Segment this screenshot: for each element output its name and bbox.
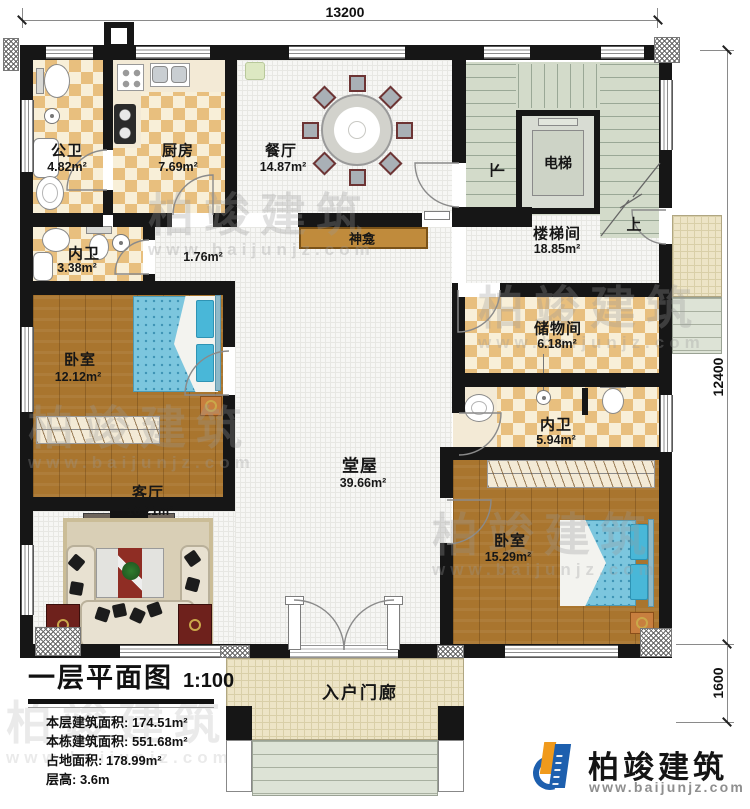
sofa-pillow bbox=[69, 581, 84, 596]
stair-down-label: 下 bbox=[487, 162, 508, 177]
wall bbox=[20, 213, 103, 227]
entry-steps bbox=[252, 740, 438, 796]
floor-plan-canvas: 柏竣建筑 www.baijunjz.com 柏竣建筑 www.baijunjz.… bbox=[0, 0, 750, 809]
sink-icon bbox=[42, 228, 70, 252]
legend-divider-thin bbox=[28, 707, 214, 708]
wall bbox=[213, 213, 237, 227]
dining-chair bbox=[302, 122, 319, 139]
stat-label: 本层建筑面积: bbox=[46, 715, 128, 730]
stat-label: 占地面积: bbox=[46, 753, 102, 768]
bath-partition bbox=[582, 388, 588, 415]
entry-door-leaf bbox=[387, 600, 400, 650]
toilet-icon bbox=[602, 388, 624, 414]
stair-treads-left bbox=[466, 64, 516, 213]
sofa-pillow bbox=[112, 603, 127, 618]
kitchen-stove bbox=[114, 104, 136, 144]
dining-chair bbox=[349, 169, 366, 186]
legend-divider bbox=[28, 699, 214, 704]
ceiling-lamp-icon bbox=[112, 234, 130, 252]
ceiling-lamp-icon bbox=[536, 390, 551, 405]
window bbox=[46, 46, 93, 59]
room-label-entry-porch: 入户门廊 bbox=[322, 679, 398, 704]
wall bbox=[452, 283, 458, 297]
window bbox=[660, 80, 673, 150]
headboard bbox=[648, 519, 654, 607]
stat-value: 551.68m² bbox=[132, 734, 188, 749]
wall bbox=[440, 543, 453, 644]
room-area-main-hall: 39.66m² bbox=[340, 476, 387, 490]
dining-table-center bbox=[348, 121, 366, 139]
room-area-kitchen: 7.69m² bbox=[158, 160, 198, 174]
bathtub bbox=[33, 252, 53, 281]
entry-door-cap bbox=[285, 596, 304, 605]
pillow bbox=[630, 564, 648, 600]
wardrobe bbox=[487, 460, 655, 488]
stat-label: 本栋建筑面积: bbox=[46, 734, 128, 749]
room-label-stair-hall: 楼梯间 bbox=[533, 223, 581, 244]
nightstand-lamp-icon bbox=[205, 400, 217, 412]
wall bbox=[440, 447, 672, 460]
window bbox=[484, 46, 530, 59]
sink-inner bbox=[471, 401, 487, 415]
dim-right-label: 12400 bbox=[710, 358, 726, 397]
floor-main-hall bbox=[235, 227, 452, 644]
wall bbox=[103, 60, 113, 150]
room-label-living-room: 客厅 bbox=[132, 482, 164, 503]
wall bbox=[452, 60, 466, 163]
entry-door-cap bbox=[384, 596, 403, 605]
room-label-elevator: 电梯 bbox=[544, 153, 572, 173]
chimney-flue bbox=[111, 28, 127, 44]
wall bbox=[143, 274, 155, 281]
stat-value: 174.51m² bbox=[132, 715, 188, 730]
brand-url: www.baijunjz.com bbox=[589, 779, 745, 795]
stair-treads-top bbox=[518, 64, 598, 108]
wall bbox=[113, 213, 172, 227]
door-threshold bbox=[290, 645, 398, 658]
corner-hatch bbox=[3, 38, 19, 71]
plan-title: 一层平面图 bbox=[28, 656, 173, 695]
porch-column-base bbox=[438, 740, 464, 792]
dim-line-right bbox=[727, 50, 728, 645]
room-label-dining: 餐厅 bbox=[265, 140, 297, 161]
stat-value: 178.99m² bbox=[106, 753, 162, 768]
room-area-storage: 6.18m² bbox=[537, 337, 577, 351]
side-porch-steps bbox=[672, 297, 722, 354]
dining-chair bbox=[349, 75, 366, 92]
dim-top-label: 13200 bbox=[326, 4, 365, 20]
entry-door-leaf bbox=[288, 600, 301, 650]
room-label-kitchen: 厨房 bbox=[162, 140, 194, 161]
stair-up-label: 上 bbox=[626, 214, 641, 235]
brand-logo: 柏竣建筑 www.baijunjz.com bbox=[528, 738, 740, 800]
sliding-door bbox=[424, 211, 450, 220]
wall bbox=[223, 395, 235, 497]
corner-hatch bbox=[437, 645, 464, 658]
wall bbox=[20, 281, 235, 295]
stair-treads-right bbox=[600, 64, 659, 236]
room-label-bedroom-2: 卧室 bbox=[494, 530, 526, 551]
toilet-tank bbox=[36, 68, 44, 94]
wall bbox=[223, 295, 235, 347]
wardrobe bbox=[36, 416, 160, 444]
porch-column bbox=[438, 706, 464, 740]
plan-scale: 1:100 bbox=[183, 670, 234, 693]
room-label-shrine: 神龛 bbox=[349, 229, 375, 248]
kitchen-sink-basin bbox=[171, 66, 187, 83]
room-area-living-room: 16.21m² bbox=[127, 504, 174, 518]
stat-label: 层高: bbox=[46, 772, 76, 787]
wall bbox=[452, 373, 672, 387]
room-area-bedroom-2: 15.29m² bbox=[485, 550, 532, 564]
side-porch bbox=[672, 215, 722, 297]
wall bbox=[143, 227, 155, 240]
kitchen-hob bbox=[117, 64, 144, 91]
wall bbox=[440, 460, 453, 498]
window bbox=[660, 395, 673, 452]
room-area-stair-hall: 18.85m² bbox=[534, 242, 581, 256]
window bbox=[21, 100, 34, 172]
legend-panel: 一层平面图 1:100 本层建筑面积: 174.51m² 本栋建筑面积: 551… bbox=[28, 656, 238, 789]
window bbox=[505, 645, 618, 658]
wall bbox=[103, 190, 113, 215]
room-area-inner-bath-2: 5.94m² bbox=[536, 433, 576, 447]
wall bbox=[500, 283, 672, 297]
pillow bbox=[196, 344, 214, 382]
corner-hatch bbox=[654, 37, 680, 63]
plant-icon bbox=[122, 562, 140, 580]
room-area-shrine: 1.76m² bbox=[183, 250, 223, 264]
wall bbox=[298, 213, 422, 227]
table-ornament-icon bbox=[189, 619, 201, 631]
room-area-inner-bath-1: 3.38m² bbox=[57, 261, 97, 275]
side-door-leaf bbox=[660, 208, 672, 244]
kitchen-sink-basin bbox=[152, 66, 168, 83]
room-label-inner-bath-2: 内卫 bbox=[540, 414, 572, 435]
wall bbox=[225, 60, 237, 213]
toilet-icon bbox=[44, 64, 70, 98]
window bbox=[21, 545, 34, 615]
wall bbox=[452, 297, 465, 413]
window bbox=[601, 46, 644, 59]
pillow bbox=[196, 300, 214, 338]
ceiling-lamp-icon bbox=[44, 108, 60, 124]
room-label-storage: 储物间 bbox=[534, 318, 582, 339]
headboard bbox=[215, 295, 221, 391]
dim-line-top bbox=[22, 20, 658, 21]
corner-hatch bbox=[35, 627, 81, 656]
side-table bbox=[178, 604, 212, 646]
room-area-bedroom-1: 12.12m² bbox=[55, 370, 102, 384]
dining-chair bbox=[396, 122, 413, 139]
window bbox=[289, 46, 405, 59]
window bbox=[21, 327, 34, 412]
elevator-door-slot bbox=[538, 118, 578, 126]
room-area-dining: 14.87m² bbox=[260, 160, 307, 174]
stat-value: 3.6m bbox=[80, 772, 110, 787]
dim-porch-label: 1600 bbox=[710, 667, 726, 698]
room-label-public-bath: 公卫 bbox=[51, 140, 83, 161]
room-label-main-hall: 堂屋 bbox=[342, 452, 378, 477]
pillow bbox=[630, 524, 648, 560]
window bbox=[136, 46, 210, 59]
corner-hatch bbox=[640, 628, 672, 657]
sink-inner bbox=[42, 183, 58, 203]
room-area-public-bath: 4.82m² bbox=[47, 160, 87, 174]
toilet-tank bbox=[86, 226, 112, 234]
room-label-bedroom-1: 卧室 bbox=[64, 349, 96, 370]
wall bbox=[452, 207, 532, 227]
plant-box bbox=[245, 62, 265, 80]
dim-line-porch bbox=[727, 645, 728, 722]
